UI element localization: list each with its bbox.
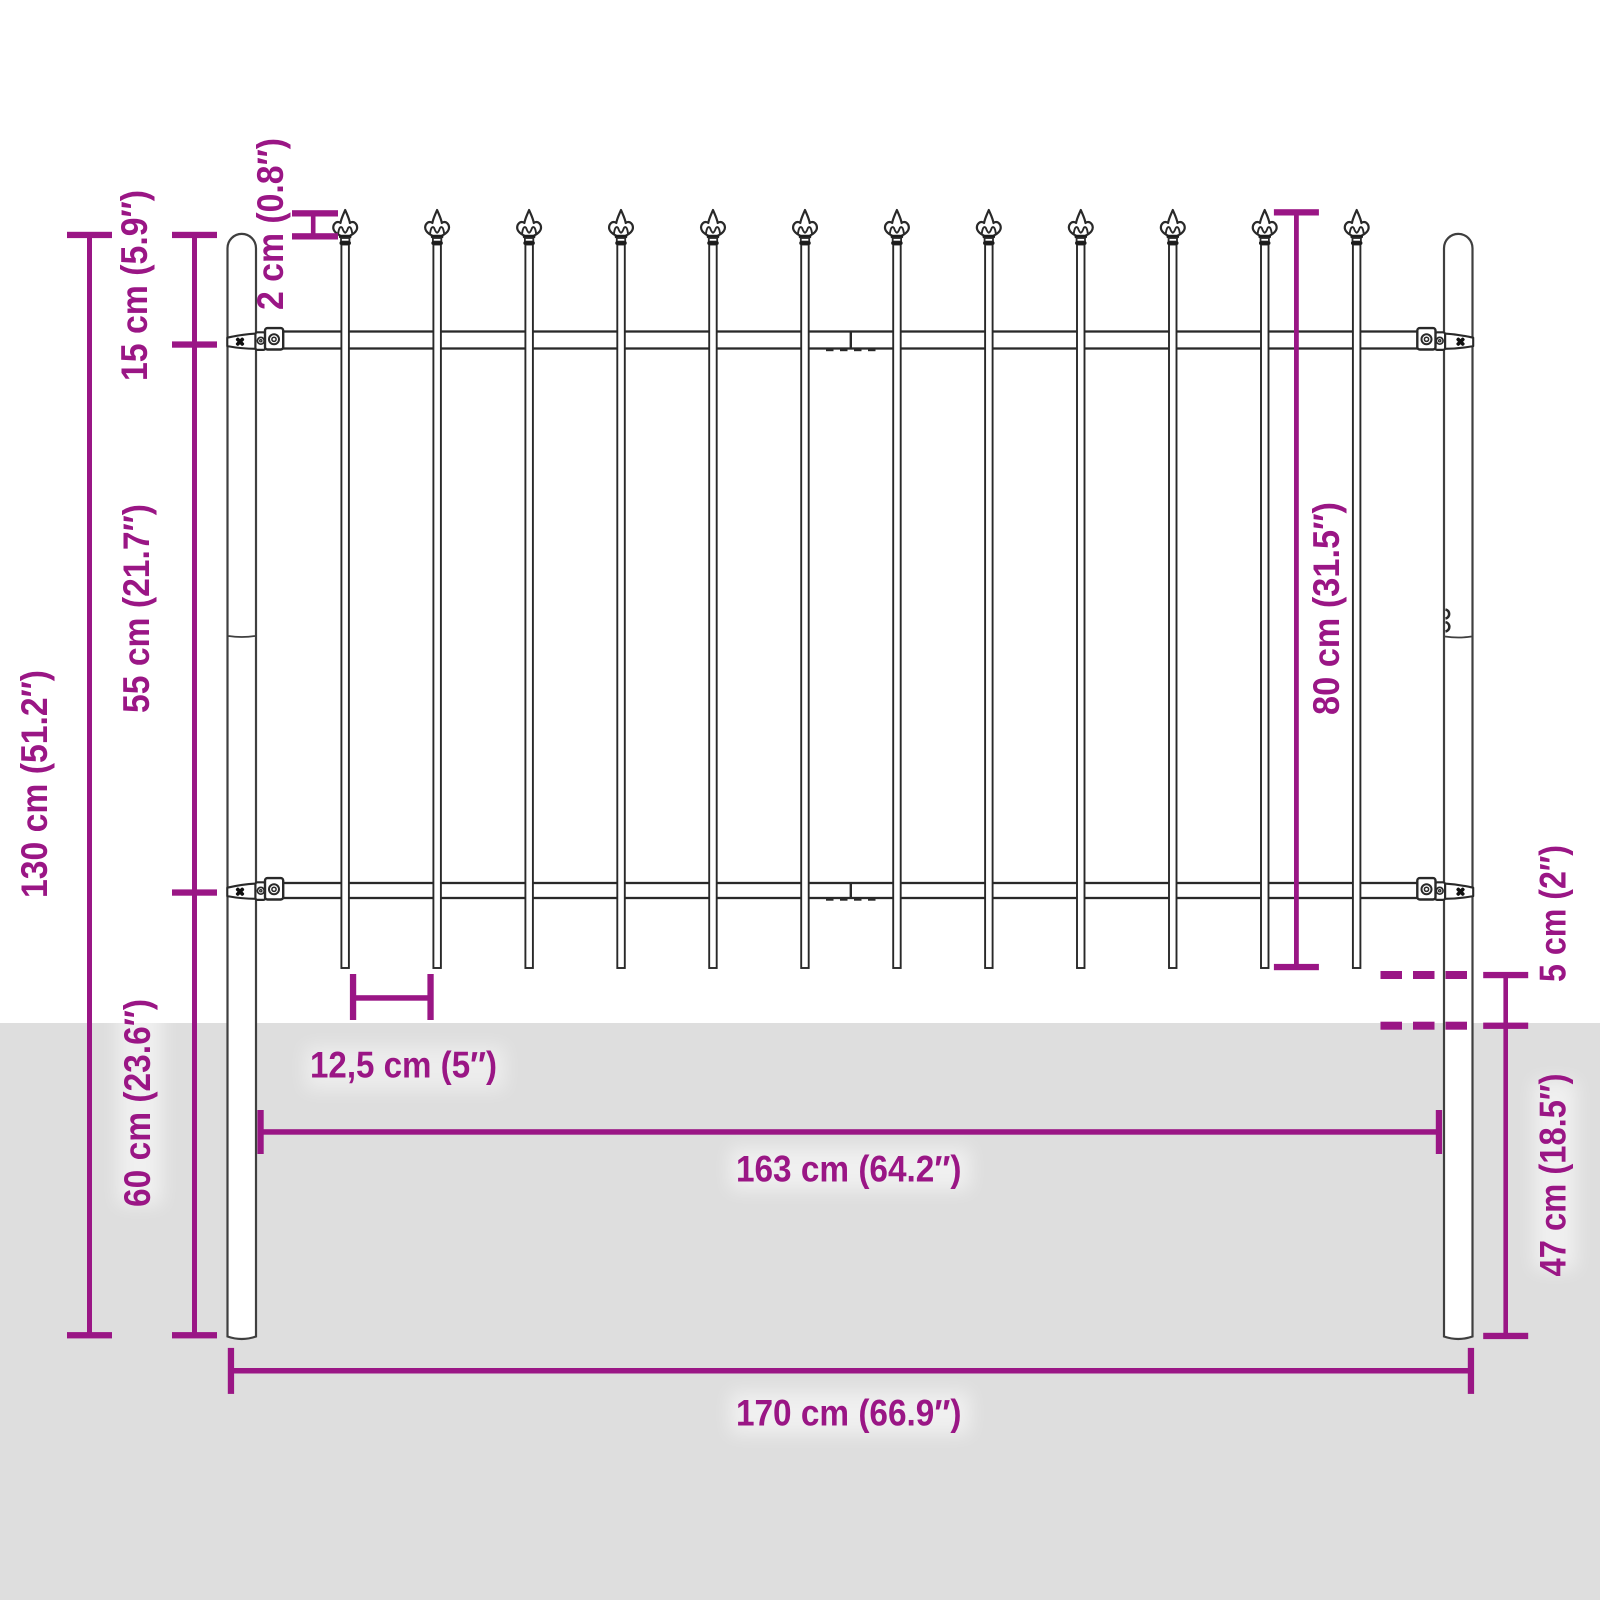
svg-text:163 cm (64.2″): 163 cm (64.2″)	[736, 1147, 962, 1189]
svg-text:80 cm (31.5″): 80 cm (31.5″)	[1305, 502, 1347, 715]
svg-text:47 cm (18.5″): 47 cm (18.5″)	[1532, 1074, 1574, 1277]
svg-text:5 cm (2″): 5 cm (2″)	[1532, 845, 1574, 982]
svg-text:130 cm (51.2″): 130 cm (51.2″)	[13, 670, 55, 898]
svg-text:2 cm (0.8″): 2 cm (0.8″)	[249, 138, 291, 310]
svg-text:15 cm (5.9″): 15 cm (5.9″)	[113, 190, 155, 381]
svg-text:55 cm (21.7″): 55 cm (21.7″)	[115, 504, 157, 713]
svg-text:60 cm (23.6″): 60 cm (23.6″)	[116, 999, 158, 1207]
svg-text:170 cm (66.9″): 170 cm (66.9″)	[736, 1391, 962, 1433]
svg-text:12,5 cm (5″): 12,5 cm (5″)	[310, 1044, 497, 1086]
